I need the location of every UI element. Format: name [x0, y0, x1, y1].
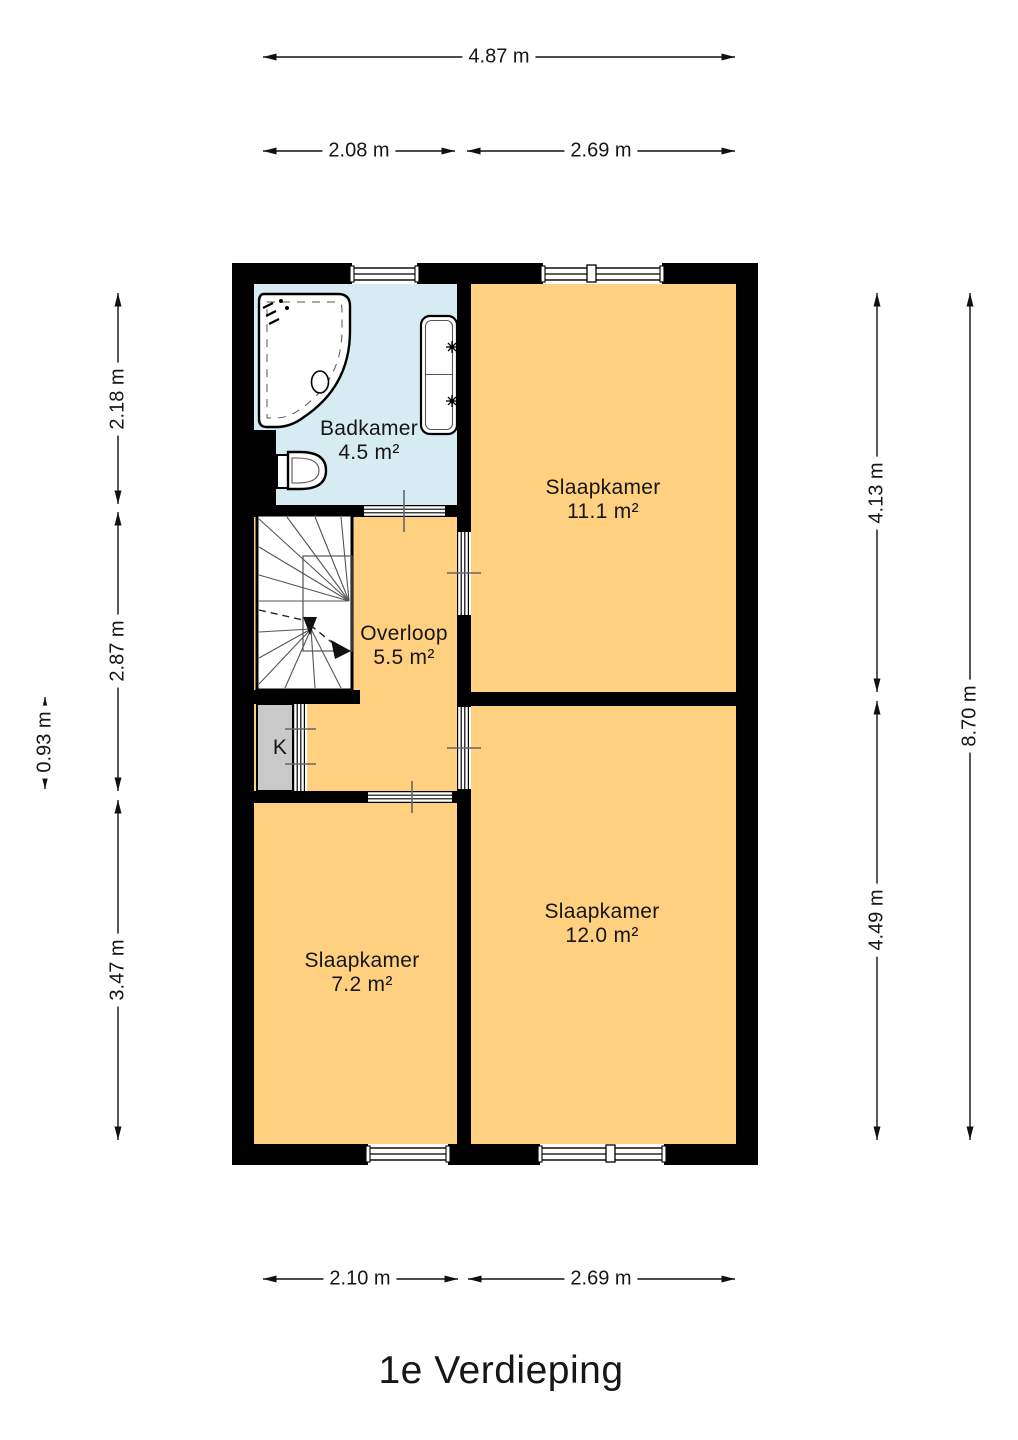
room-label-slaapkamer-111: Slaapkamer 11.1 m² [545, 476, 660, 524]
dimension-right-upper: 4.13 m [866, 456, 889, 529]
dimension-top-right: 2.69 m [564, 140, 637, 163]
page-title: 1e Verdieping [378, 1349, 623, 1393]
dimension-right-lower: 4.49 m [866, 883, 889, 956]
floor-plan-page: 4.87 m 2.08 m 2.69 m 2.18 m 2.87 m 0.93 … [0, 0, 1018, 1440]
floor-plan-drawing [0, 0, 1018, 1440]
room-area: 11.1 m² [545, 500, 660, 524]
window-icon-bottom-left [366, 1144, 450, 1165]
dimension-right-total: 8.70 m [959, 679, 982, 752]
room-label-closet-k: K [273, 736, 287, 760]
dimension-left-middle: 2.87 m [107, 614, 130, 687]
room-label-overloop: Overloop 5.5 m² [360, 622, 448, 670]
room-name: Slaapkamer [545, 476, 660, 500]
dimension-left-closet: 0.93 m [34, 705, 57, 778]
room-name: Slaapkamer [304, 949, 419, 973]
room-area: 5.5 m² [360, 646, 448, 670]
room-fills [254, 284, 737, 1144]
window-icon-bottom-right [538, 1144, 666, 1165]
room-label-slaapkamer-72: Slaapkamer 7.2 m² [304, 949, 419, 997]
window-icon-top-left [350, 263, 419, 284]
double-sink-icon [421, 316, 458, 434]
dimension-bottom-left: 2.10 m [323, 1268, 396, 1291]
dimension-top-total: 4.87 m [462, 46, 535, 69]
room-label-badkamer: Badkamer 4.5 m² [320, 417, 418, 465]
dimension-left-lower: 3.47 m [107, 933, 130, 1006]
room-area: 4.5 m² [320, 441, 418, 465]
window-icon-top-right [541, 263, 664, 284]
room-area: 7.2 m² [304, 973, 419, 997]
stairs-icon [257, 515, 352, 690]
dimension-bottom-right: 2.69 m [564, 1268, 637, 1291]
room-name: Slaapkamer [544, 900, 659, 924]
room-name: Badkamer [320, 417, 418, 441]
room-name: K [273, 736, 287, 760]
toilet-icon [277, 452, 326, 489]
room-label-slaapkamer-120: Slaapkamer 12.0 m² [544, 900, 659, 948]
dimension-top-left: 2.08 m [322, 140, 395, 163]
dimension-left-upper: 2.18 m [107, 362, 130, 435]
room-area: 12.0 m² [544, 924, 659, 948]
room-name: Overloop [360, 622, 448, 646]
